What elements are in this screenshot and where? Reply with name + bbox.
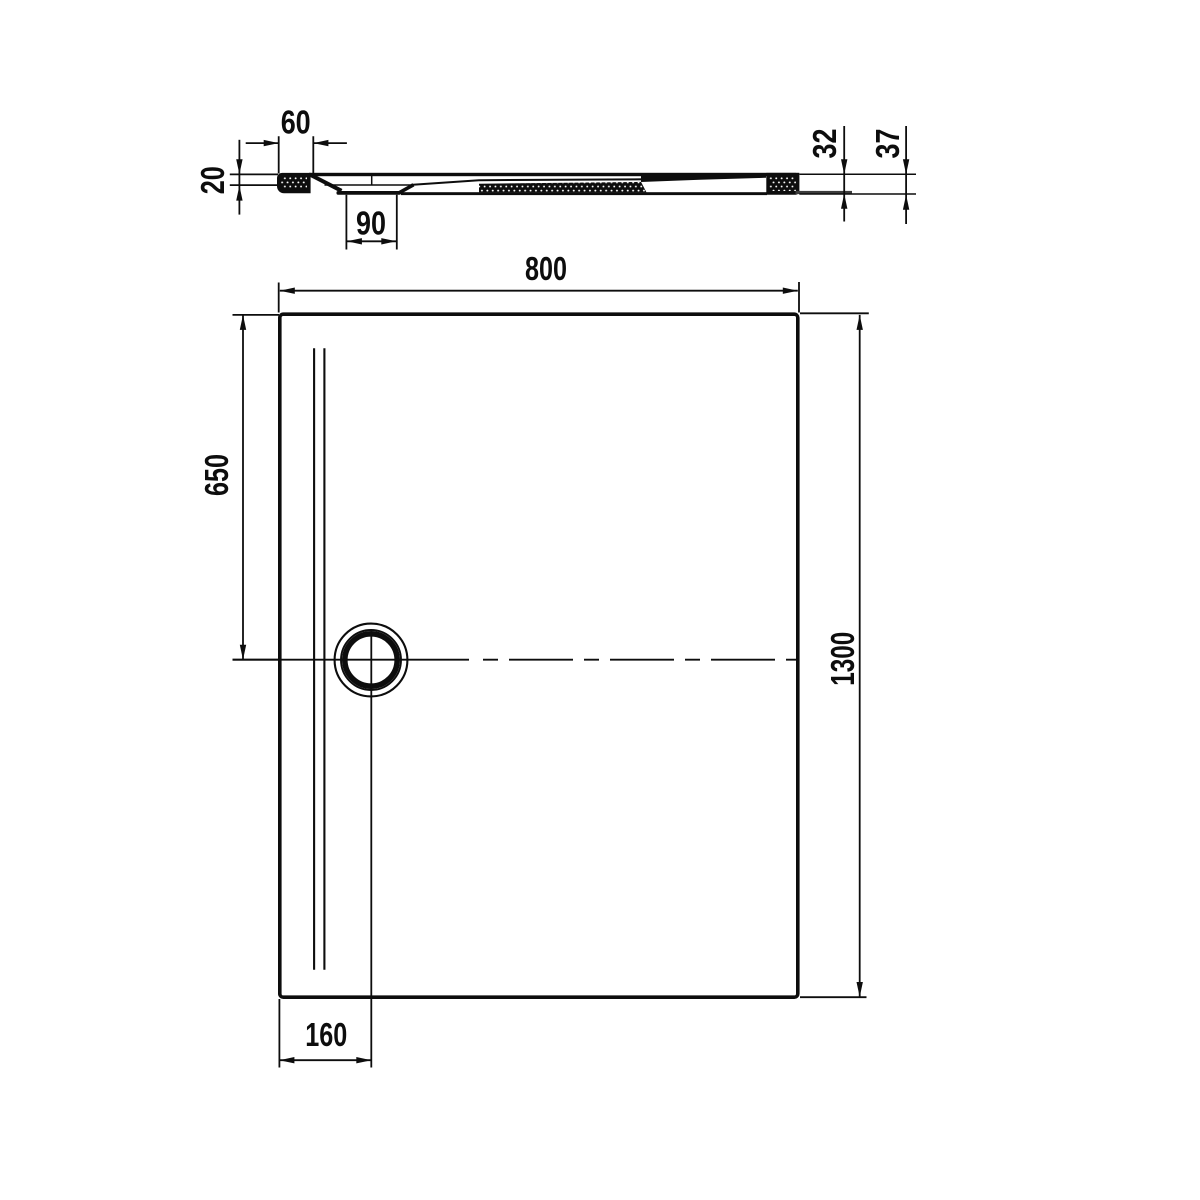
svg-text:32: 32 (806, 129, 843, 159)
svg-text:20: 20 (194, 166, 231, 194)
svg-text:60: 60 (281, 104, 311, 141)
svg-text:650: 650 (198, 454, 235, 496)
svg-text:90: 90 (356, 204, 386, 241)
svg-text:800: 800 (525, 250, 567, 287)
svg-text:160: 160 (305, 1016, 347, 1053)
svg-text:37: 37 (869, 129, 906, 159)
svg-text:1300: 1300 (824, 632, 861, 686)
